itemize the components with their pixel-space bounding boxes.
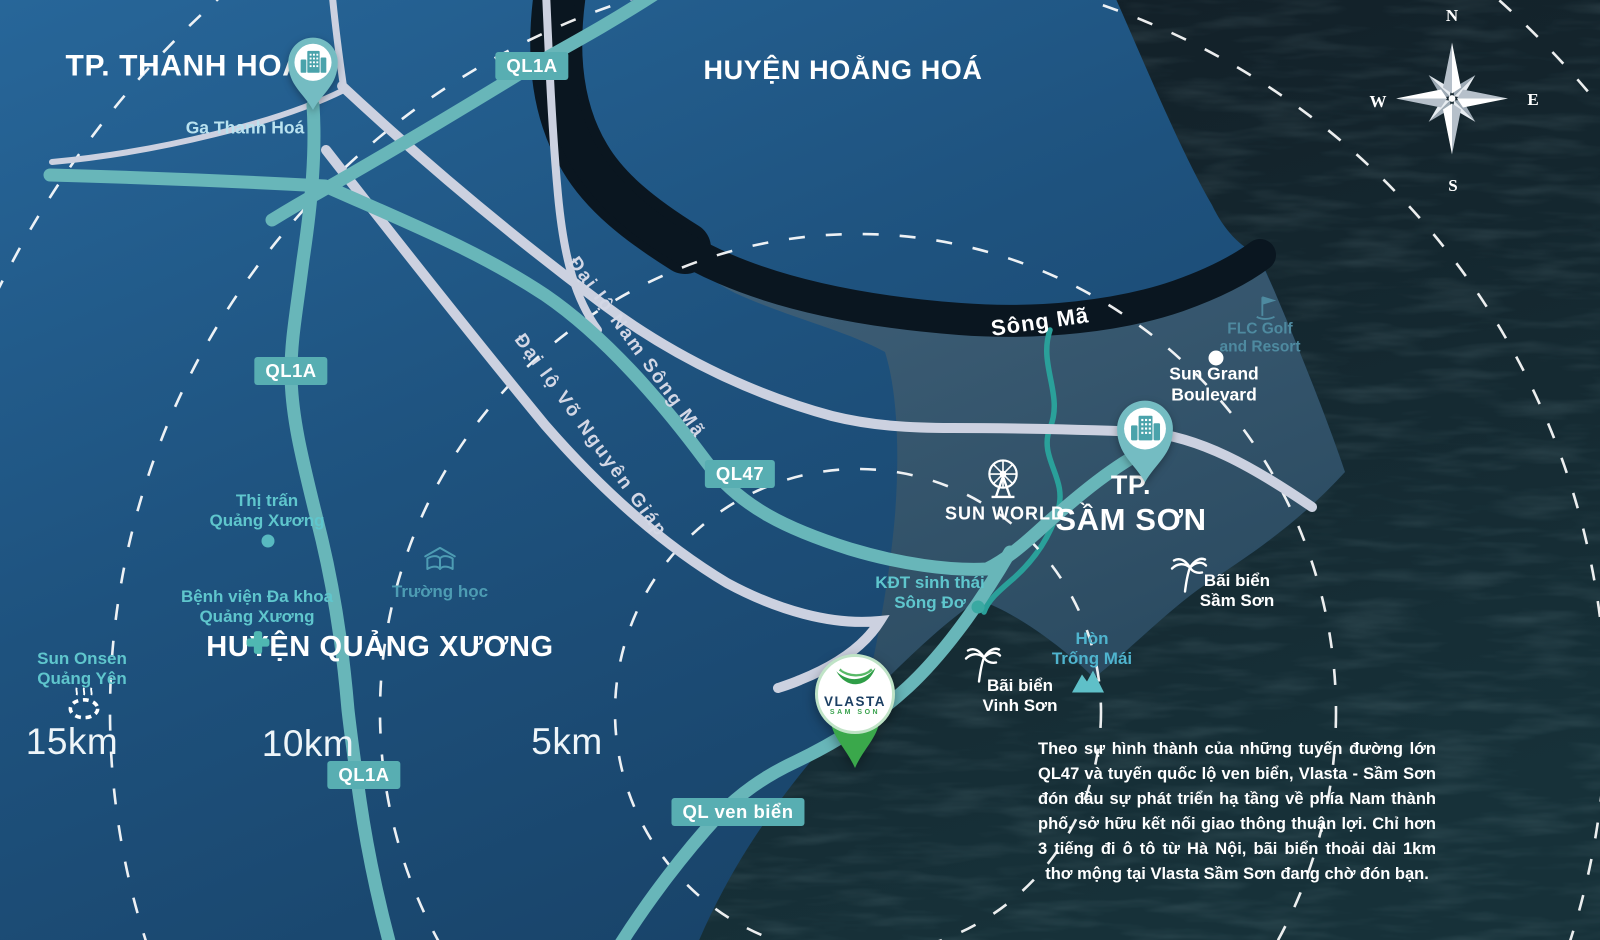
- poi-truong-hoc: Trường học: [392, 582, 488, 602]
- poi-sun-world: SUN WORLD: [945, 503, 1065, 524]
- badge-ql1a-mid: QL1A: [254, 357, 327, 385]
- poi-kdt-song-do: KĐT sinh thái Sông Đơ: [875, 573, 985, 613]
- ferris-wheel-icon: [981, 456, 1025, 509]
- vinh-son-line1: Bãi biển: [982, 676, 1057, 696]
- tp-sam-son-line2: SẦM SƠN: [1055, 502, 1206, 539]
- kdt-dot: [972, 601, 985, 614]
- sun-onsen-line1: Sun Onsen: [37, 649, 127, 669]
- poi-sun-grand: Sun Grand Boulevard: [1169, 363, 1258, 404]
- poi-flc-golf: FLC Golf and Resort: [1220, 321, 1301, 358]
- ring-label-15km: 15km: [26, 720, 118, 764]
- ring-label-10km: 10km: [262, 722, 354, 766]
- town-dot: [262, 535, 275, 548]
- mountain-icon: [1069, 667, 1107, 700]
- badge-ql47: QL47: [705, 460, 775, 488]
- badge-ql1a-north: QL1A: [495, 52, 568, 80]
- ring-label-5km: 5km: [531, 720, 602, 764]
- compass-n: N: [1446, 6, 1458, 26]
- project-description: Theo sự hình thành của những tuyến đường…: [1038, 737, 1436, 887]
- region-label-tp-thanh-hoa: TP. THANH HOÁ: [66, 48, 305, 83]
- flc-line1: FLC Golf: [1220, 321, 1301, 339]
- thi-tran-line1: Thị trấn: [209, 491, 324, 511]
- poi-thi-tran-quang-xuong: Thị trấn Quảng Xương: [209, 491, 324, 531]
- benh-vien-line2: Quảng Xương: [181, 607, 333, 627]
- poi-benh-vien: Bệnh viện Đa khoa Quảng Xương: [181, 587, 333, 627]
- badge-ql-ven-bien: QL ven biển: [671, 798, 804, 826]
- compass-s: S: [1448, 176, 1457, 196]
- vlasta-project-pin: VLASTA SAM SON: [805, 656, 905, 772]
- poi-bai-bien-vinh-son: Bãi biển Vinh Sơn: [982, 676, 1057, 716]
- onsen-icon: [63, 686, 105, 727]
- poi-ga-thanh-hoa: Ga Thanh Hoá: [186, 118, 305, 139]
- flc-line2: and Resort: [1220, 339, 1301, 357]
- benh-vien-line1: Bệnh viện Đa khoa: [181, 587, 333, 607]
- compass-w: W: [1370, 92, 1387, 112]
- sam-son-beach-line1: Bãi biển: [1200, 571, 1274, 591]
- poi-hon-trong-mai: Hòn Trống Mái: [1052, 629, 1132, 669]
- location-map: TP. THANH HOÁ HUYỆN HOẰNG HOÁ HUYỆN QUẢN…: [0, 0, 1600, 940]
- sam-son-beach-line2: Sầm Sơn: [1200, 591, 1274, 611]
- sun-grand-line1: Sun Grand: [1169, 363, 1258, 384]
- kdt-line1: KĐT sinh thái: [875, 573, 985, 593]
- hospital-cross-icon: [245, 629, 272, 661]
- school-icon: [421, 545, 459, 580]
- poi-bai-bien-sam-son: Bãi biển Sầm Sơn: [1200, 571, 1274, 611]
- project-name: VLASTA: [818, 694, 892, 709]
- kdt-line2: Sông Đơ: [875, 593, 985, 613]
- thanh-hoa-city-pin: [284, 34, 342, 117]
- sam-son-city-pin: [1112, 396, 1178, 489]
- compass-e: E: [1527, 90, 1538, 110]
- region-label-huyen-hoang-hoa: HUYỆN HOẰNG HOÁ: [703, 55, 982, 87]
- thi-tran-line2: Quảng Xương: [209, 511, 324, 531]
- hon-trong-mai-line1: Hòn: [1052, 629, 1132, 649]
- poi-sun-onsen: Sun Onsen Quảng Yên: [37, 649, 127, 689]
- sun-grand-line2: Boulevard: [1169, 384, 1258, 405]
- vlasta-logo-icon: [829, 661, 881, 695]
- compass-rose-icon: [1377, 24, 1527, 179]
- project-subtitle: SAM SON: [818, 709, 892, 716]
- vinh-son-line2: Vinh Sơn: [982, 696, 1057, 716]
